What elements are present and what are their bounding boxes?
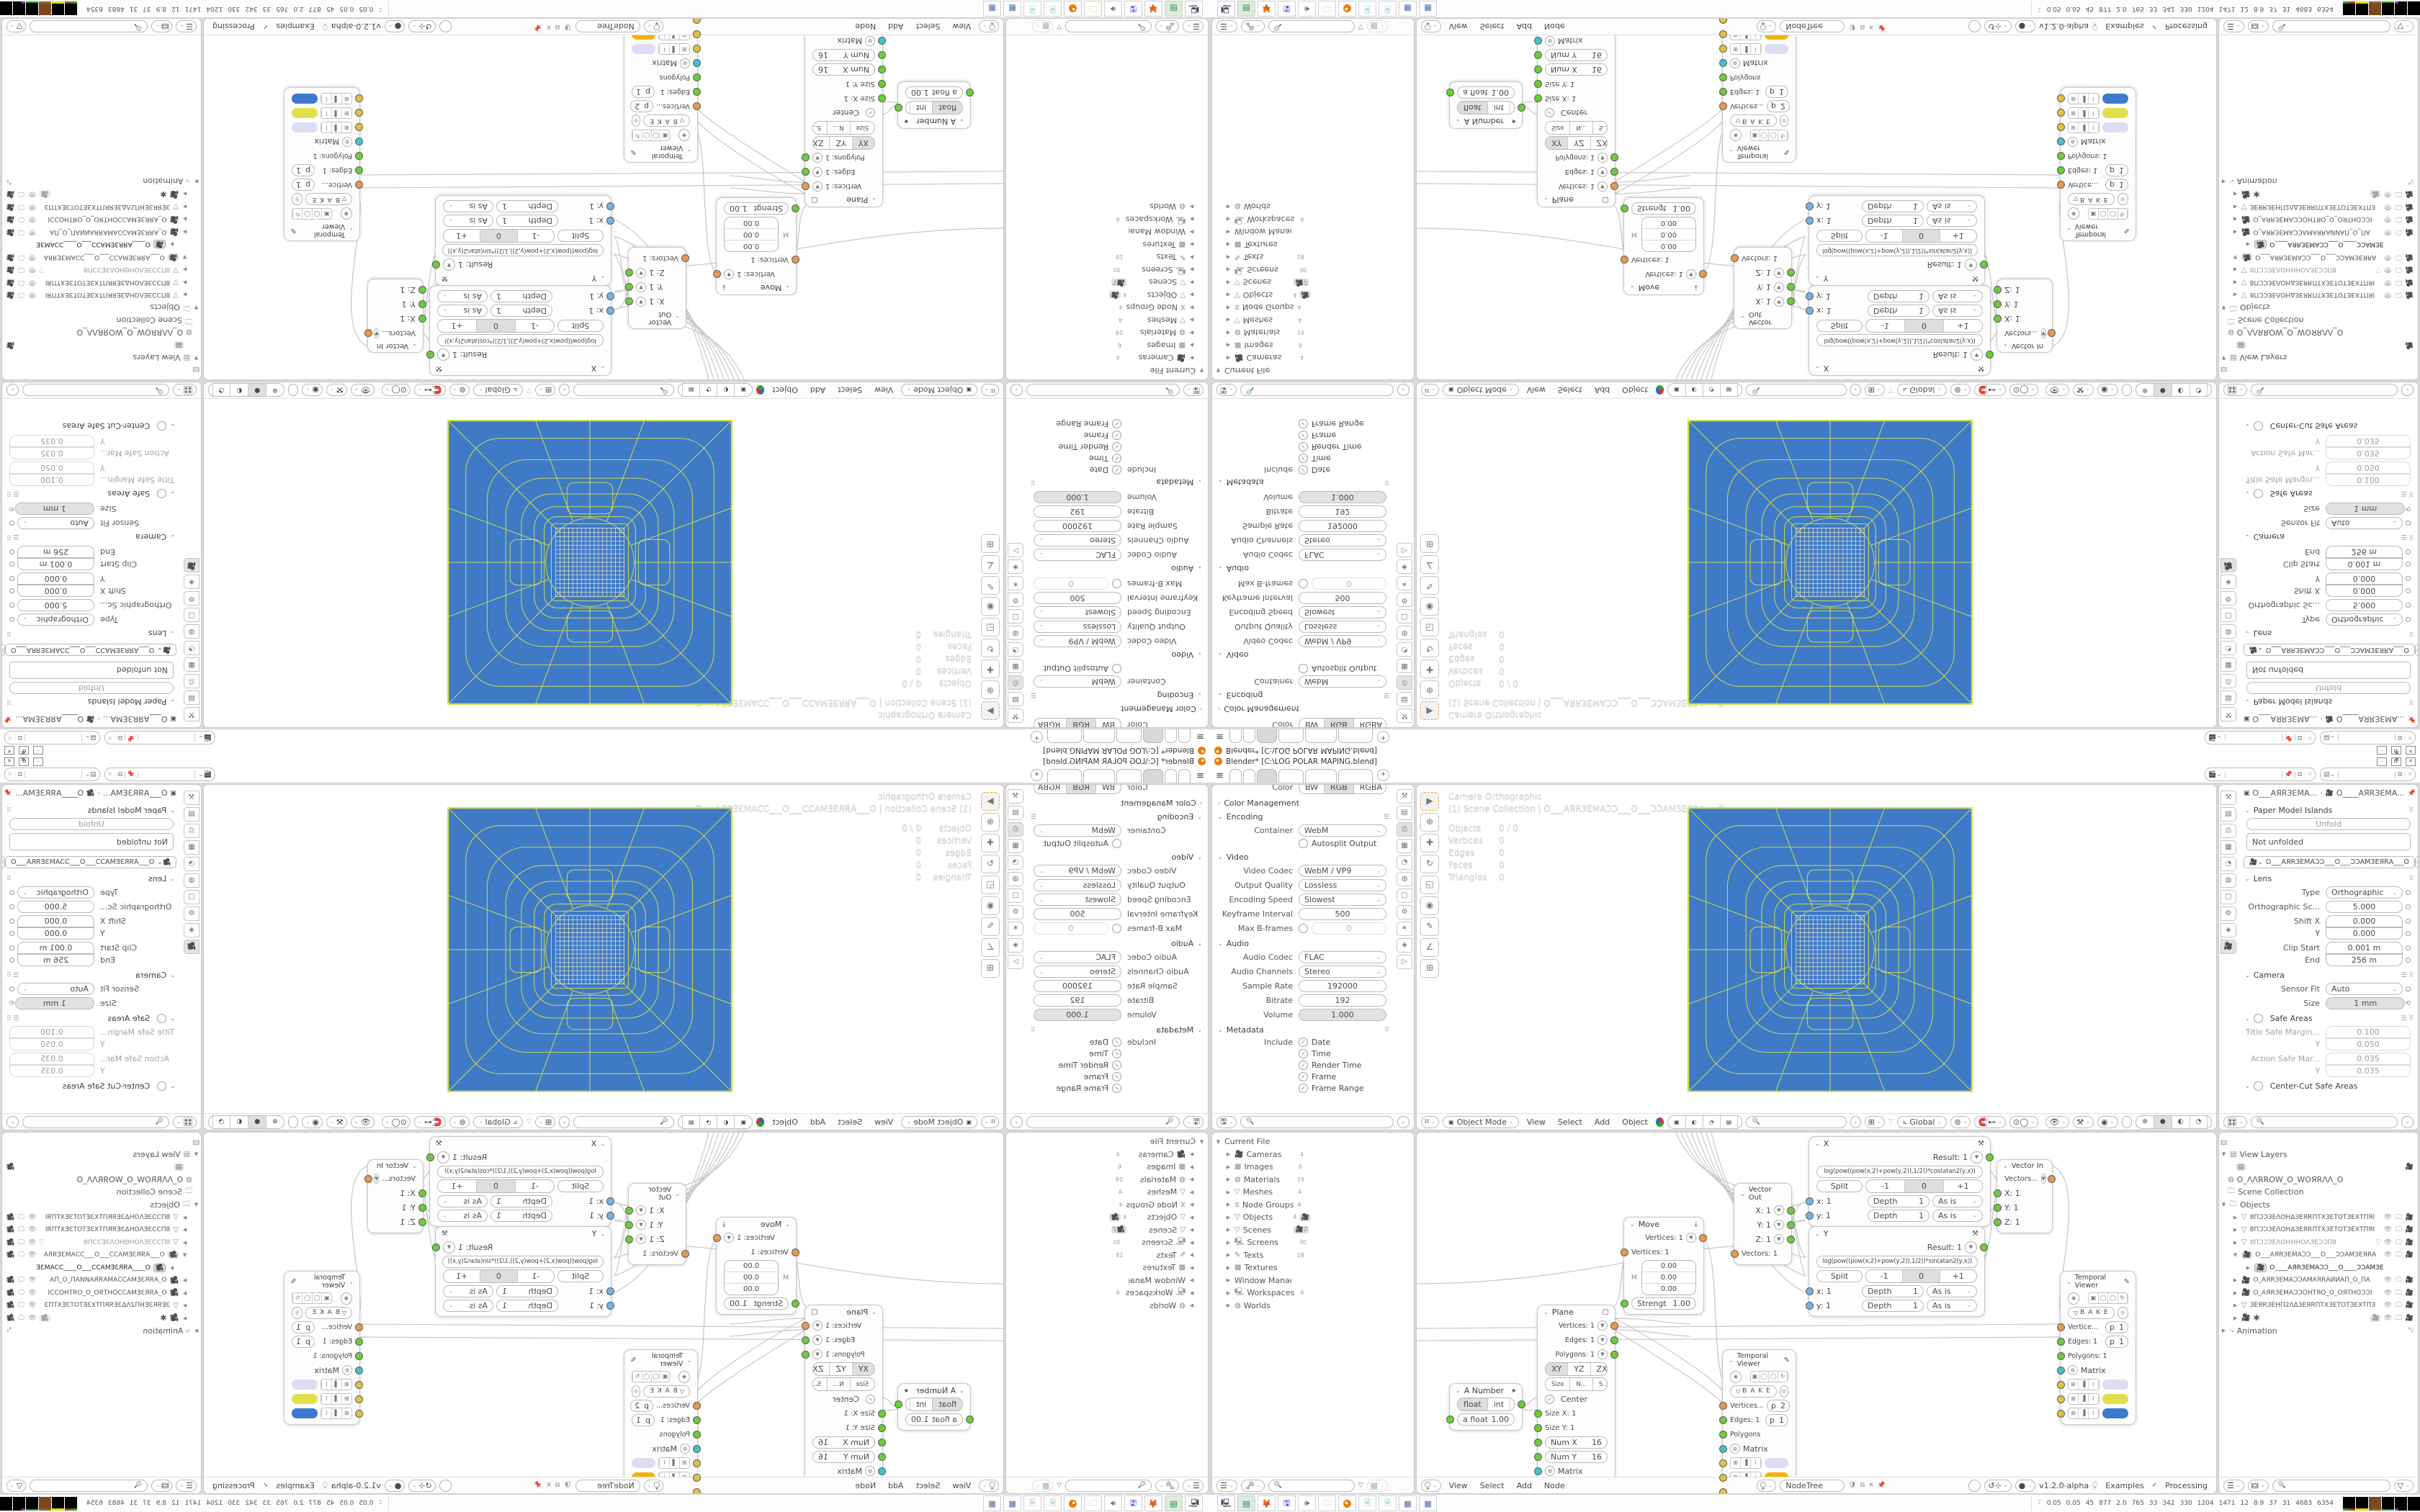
filter-dropdown[interactable]: ▽⌄ — [6, 1480, 26, 1492]
viewport-search-input[interactable]: 🔍 — [573, 384, 673, 397]
container-dropdown[interactable]: WebM⌄ — [1299, 824, 1386, 837]
tree-icon[interactable]: ⧬⌄ — [644, 21, 664, 33]
material-shading-button[interactable]: ◐ — [230, 384, 248, 397]
split-button[interactable]: Split — [1816, 230, 1863, 242]
node-a-number[interactable]: ⌄A Number▸ floatint⚙▼ a float1.00 — [1449, 1383, 1523, 1431]
output-tab-icon[interactable]: ⎙ — [1397, 822, 1412, 837]
formula-field[interactable]: log(pow((pow(x,2)+pow(y,2)),1/2))*cos(at… — [437, 1166, 604, 1178]
editor-type-button[interactable]: ⌗⌄ — [1421, 1116, 1439, 1128]
output-socket[interactable] — [1980, 1243, 1988, 1251]
tree-item[interactable]: Scene Collection — [2238, 315, 2414, 325]
material-shading-button[interactable]: ◐ — [230, 1116, 248, 1128]
measure-tool[interactable]: ∠ — [1420, 938, 1439, 957]
snap-target-button[interactable]: ⊚⌄ — [449, 1116, 470, 1128]
anim-icon[interactable]: ◎ — [2117, 1307, 2128, 1319]
add-menu[interactable]: Add — [1590, 1117, 1614, 1127]
physics-tab-icon[interactable]: ◈ — [1008, 938, 1023, 953]
particles-tab-icon[interactable]: ✶ — [1397, 576, 1412, 590]
tree-item[interactable]: ЗЕЯRЗЕНП2ΛΔЗЕЯRПТХЗЕТОТЗЕХТПЗ — [2250, 203, 2381, 210]
viewport-icon[interactable]: 🖵 — [2396, 228, 2402, 235]
workspace-tab[interactable] — [1083, 729, 1115, 743]
shading-mode-group[interactable]: ⊕ ● ◐ ◔ ⌄ — [208, 1115, 284, 1129]
add-workspace-button[interactable]: + — [1377, 731, 1389, 743]
input-socket[interactable] — [1719, 1431, 1727, 1439]
render-icon[interactable]: 🎥 — [2406, 203, 2414, 210]
tree-item[interactable]: Objects — [2240, 1200, 2414, 1210]
output-socket[interactable] — [625, 298, 633, 306]
shading-dropdown[interactable]: ⌄ — [208, 1116, 212, 1128]
object-tab-icon[interactable]: ▢ — [1397, 609, 1412, 624]
sensor-fit-dropdown[interactable]: Auto⌄ — [17, 517, 94, 529]
viewport-3d[interactable]: ▶ ⊕ ✚ ↻ ◱ ◉ ✎ ∠ ⊞ Camera Orthographic (1… — [203, 382, 1004, 728]
audio-codec-dropdown[interactable]: FLAC⌄ — [1034, 951, 1121, 963]
depth-field[interactable]: Depth1 — [496, 201, 558, 213]
output-socket[interactable] — [1986, 1153, 1994, 1161]
tree-item[interactable]: О_АЯRЗЕМАƆƆАМАЯRАИИАП_О_ПА — [2253, 1277, 2380, 1284]
metadata-panel[interactable]: Metadata — [1227, 1025, 1264, 1035]
taskbar-speaker-icon[interactable]: 🕪 — [1104, 1, 1122, 17]
max-bframes-checkbox[interactable] — [1112, 924, 1121, 933]
max-bframes-field[interactable]: 0 — [1034, 577, 1108, 590]
formula-field[interactable]: log(pow((pow(x,2)+pow(y,2)),1/2))*sin(at… — [1816, 245, 1978, 257]
lens-type-dropdown[interactable]: Orthographic⌄ — [17, 613, 94, 626]
asis-dropdown[interactable]: As is⌄ — [443, 201, 493, 213]
transform-tool[interactable]: ◉ — [1420, 896, 1439, 915]
scene-tab-icon[interactable]: ◔ — [1397, 642, 1412, 657]
color-socket[interactable] — [1719, 1459, 1727, 1467]
tree-item[interactable]: Scenes — [1243, 1225, 1291, 1235]
particles-tab-icon[interactable]: ✶ — [1008, 576, 1023, 590]
unfold-button[interactable]: Unfold — [2246, 818, 2411, 830]
editor-type-button[interactable]: ⧬⌄ — [1421, 21, 1441, 33]
audio-codec-dropdown[interactable]: FLAC⌄ — [1034, 549, 1121, 561]
sample-rate-field[interactable]: 192000 — [1034, 520, 1121, 532]
tree-item[interactable]: О_АЯRЗЕМАƆƆОНТЯО_О_ОЯТНОƆƆI — [2253, 1290, 2380, 1297]
split-button[interactable]: Split — [1816, 320, 1863, 332]
refresh-icon[interactable]: ◉ — [341, 208, 352, 220]
input-socket[interactable] — [1719, 103, 1727, 111]
sensor-size-field[interactable]: 1 mm — [2326, 503, 2405, 515]
tree-item[interactable]: О_ΛΛRROW_О_WОЯRΛΛ_О — [2237, 1175, 2414, 1184]
close-button[interactable]: ✕ — [2406, 757, 2416, 766]
output-socket[interactable] — [802, 1336, 810, 1344]
modifier-tab-icon[interactable]: ⚙ — [1008, 905, 1023, 919]
render-icon[interactable]: 🎥 — [6, 1214, 14, 1221]
safe-areas-checkbox[interactable] — [2254, 489, 2263, 498]
editor-type-button[interactable]: 🖫⌄ — [1183, 384, 1204, 397]
tree-item[interactable]: Worlds — [1244, 202, 1298, 211]
workspace-tab[interactable] — [1116, 769, 1142, 783]
wireframe-shading-button[interactable]: ⊕ — [2136, 1116, 2154, 1128]
gizmos-dropdown[interactable]: ⚒⌄ — [2073, 384, 2094, 397]
render-icon[interactable]: 🎥 — [6, 1277, 14, 1284]
render-icon[interactable]: 🎥 — [2406, 1315, 2414, 1322]
anim-icon[interactable]: ◎ — [632, 115, 640, 127]
asis-dropdown[interactable]: As is⌄ — [1932, 305, 1983, 318]
depth-field[interactable]: Depth1 — [1868, 305, 1930, 318]
workspace-tab-active[interactable] — [1257, 729, 1277, 743]
include-rendertime-checkbox[interactable]: ✓ — [1299, 442, 1308, 451]
tree-item[interactable]: Objects — [1243, 290, 1291, 300]
camera-data-id-selector[interactable]: 🎥⌄О___АЯRЗЕМАƆƆ___О___ƆƆАМЗЕЯRА___О — [2244, 644, 2415, 656]
include-frame-checkbox[interactable]: ✓ — [1299, 431, 1308, 440]
shift-x-field[interactable]: 0.000 — [17, 585, 94, 597]
copy-icon[interactable]: ⧉ — [555, 1482, 560, 1489]
split-button[interactable]: Split — [557, 230, 604, 242]
node-a-number[interactable]: ⌄A Number▸ floatint⚙▼ a float1.00 — [1449, 81, 1523, 129]
close-icon[interactable]: ✕ — [5, 734, 16, 742]
overlay-button[interactable]: ●⌄ — [2015, 1480, 2035, 1492]
viewport-icon[interactable]: 🖵 — [18, 1226, 24, 1233]
asis-dropdown[interactable]: As is⌄ — [437, 1195, 488, 1207]
render-icon[interactable]: 🎥 — [2406, 1277, 2414, 1284]
tool-tab-icon[interactable]: ⚒ — [184, 707, 200, 721]
include-date-checkbox[interactable]: ✓ — [1112, 465, 1121, 474]
tree-item[interactable]: Textures — [1122, 1263, 1176, 1272]
input-socket[interactable] — [878, 1453, 886, 1461]
shield-icon[interactable]: 🛡 — [563, 1482, 571, 1489]
hide-icon[interactable]: 👁 — [2384, 253, 2392, 261]
scene-tab-icon[interactable]: ◔ — [2220, 857, 2236, 871]
encoding-speed-dropdown[interactable]: Slowest⌄ — [1299, 894, 1386, 906]
output-socket[interactable] — [802, 1322, 810, 1330]
dropdown-button[interactable]: ⌄ — [1850, 384, 1861, 397]
plane-size-segment[interactable]: SizeN...S...Si... — [1545, 121, 1608, 135]
vector-value-field[interactable]: 0.000.000.00 — [724, 1260, 779, 1295]
snap-toggle-button[interactable]: 🧲⊷⌄ — [414, 1116, 446, 1128]
sensor-fit-dropdown[interactable]: Auto⌄ — [17, 983, 94, 995]
color-socket[interactable] — [693, 1488, 701, 1495]
output-socket[interactable] — [1787, 1207, 1795, 1215]
input-socket[interactable] — [693, 1431, 701, 1439]
select-box-tool[interactable]: ▶ — [1420, 701, 1439, 720]
filter-person-icon[interactable]: 🜲 — [193, 364, 200, 377]
taskbar-calculator-icon[interactable]: ▦ — [1419, 1495, 1437, 1511]
color-swatch-lavender[interactable] — [292, 1380, 318, 1390]
encoding-panel[interactable]: Encoding — [1227, 690, 1263, 700]
anim-icon[interactable]: ⟲ — [2405, 1000, 2411, 1007]
tree-item[interactable]: 8ПƆƆЗЕΛОНΔЗЕЯRПТХЗЕТОТЗЕХТПЯI — [2250, 1214, 2381, 1221]
matrix-socket[interactable] — [693, 1445, 701, 1453]
output-socket[interactable] — [426, 1153, 434, 1161]
safe-areas-panel[interactable]: Safe Areas — [107, 489, 150, 498]
scene-name-field[interactable] — [2226, 732, 2282, 744]
render-icon[interactable]: 🎥 — [6, 1239, 14, 1246]
hide-icon[interactable]: 👁 — [28, 1315, 36, 1322]
add-primitive-tool[interactable]: ⊞ — [1420, 959, 1439, 978]
input-socket-y[interactable] — [1806, 1212, 1814, 1220]
formula-field[interactable]: log(pow((pow(x,2)+pow(y,2)),1/2))*sin(at… — [442, 245, 604, 257]
render-tab-icon[interactable]: ▤ — [1397, 806, 1412, 820]
float-value-field[interactable]: a float1.00 — [1457, 1413, 1515, 1426]
viewport-search-input[interactable]: 🔍 — [1746, 1116, 1846, 1128]
offset-segment[interactable]: -10+1 — [437, 319, 555, 333]
list-toggle-button[interactable]: ⊞⌄ — [1865, 384, 1885, 397]
editor-type-button[interactable]: 🖫⌄ — [1216, 1116, 1237, 1128]
tree-item[interactable]: View Layers — [6, 1150, 181, 1159]
shield-icon[interactable]: 🛡 — [1848, 1482, 1856, 1489]
dropdown-button[interactable]: ⌄ — [1850, 1116, 1861, 1128]
input-socket-x[interactable] — [1806, 1287, 1814, 1295]
pin-icon[interactable]: 📌 — [125, 771, 138, 778]
keyframe-interval-field[interactable]: 500 — [1034, 592, 1121, 604]
node-vector-out[interactable]: ⌄Vector Out X: 1▼ Y: 1▼ Z: 1▼ Vectors: 1 — [628, 247, 686, 329]
taskbar-blender-icon[interactable] — [1064, 1, 1082, 17]
editor-type-button[interactable]: ⧬⌄ — [979, 1480, 999, 1492]
keyframe-interval-field[interactable]: 500 — [1299, 908, 1386, 920]
tray-graph-widgets[interactable] — [2343, 1497, 2420, 1511]
shading-mode-group[interactable]: ⊕ ● ◐ ◔ ⌄ — [208, 384, 284, 397]
examples-menu[interactable]: Examples — [2101, 22, 2148, 32]
hide-icon[interactable]: 👁 — [2384, 266, 2392, 273]
tree-item[interactable]: Texts — [1126, 1251, 1176, 1260]
hide-icon[interactable]: 👁 — [28, 279, 36, 286]
split-button[interactable]: Split — [557, 1180, 604, 1192]
taskbar-system-monitor-icon[interactable]: 🖳 — [1217, 1495, 1235, 1511]
depth-field[interactable]: Depth1 — [496, 1300, 558, 1312]
snap-toggle-button[interactable]: 🧲⊷⌄ — [1974, 1116, 2006, 1128]
hide-icon[interactable]: 👁 — [2384, 1315, 2392, 1322]
overlays-dropdown[interactable]: ◉⌄ — [2097, 1116, 2117, 1128]
metadata-panel[interactable]: Metadata — [1156, 477, 1193, 487]
gizmo-toggle[interactable]: ▣ — [734, 1116, 752, 1128]
hide-icon[interactable]: 👁 — [2384, 203, 2392, 210]
camera-data-id-selector[interactable]: 🎥⌄О___АЯRЗЕМАƆƆ___О___ƆƆАМЗЕЯRА___О — [2244, 856, 2415, 868]
view-menu[interactable]: View — [1445, 22, 1472, 32]
output-socket[interactable] — [625, 284, 633, 292]
gizmo-toggle[interactable]: ▣ — [1668, 1116, 1686, 1128]
viewport-icon[interactable]: 🖵 — [18, 190, 24, 197]
gizmo-toggle[interactable]: ▣ — [1668, 384, 1686, 397]
rgba-button[interactable]: RGBA — [1354, 719, 1386, 727]
color-socket[interactable] — [2057, 95, 2065, 103]
keyframe-dot[interactable] — [2406, 904, 2411, 909]
viewport-toggle-group[interactable]: ▣ ◐ ◔ ▤ ⎙ — [1667, 1115, 1742, 1129]
clip-end-field[interactable]: 256 m — [17, 546, 94, 558]
include-time-checkbox[interactable]: ✓ — [1299, 454, 1308, 463]
copy-icon[interactable]: ⧉ — [1860, 23, 1865, 30]
viewlayer-selector[interactable]: ▤⌄ ⧉ ✕ — [4, 731, 100, 744]
include-rendertime-checkbox[interactable]: ✓ — [1112, 1061, 1121, 1070]
particles-tab-icon[interactable]: ✶ — [1008, 922, 1023, 936]
pin-icon[interactable]: 📌 — [534, 1482, 542, 1489]
node-math-y[interactable]: ⌄Y⚒ Result: 1▼ log(pow((pow(x,2)+pow(y,2… — [1809, 195, 1985, 286]
shading-dropdown[interactable]: ⌄ — [2208, 1116, 2212, 1128]
tree-item-selected[interactable]: О____АЯRЗЕМАƆƆ___О____ƆƆАМЗЕ — [2269, 240, 2414, 248]
max-bframes-checkbox[interactable] — [1299, 579, 1308, 588]
anim-icon[interactable]: ⟲ — [9, 505, 15, 513]
restore-button[interactable]: 🗗 — [19, 747, 29, 755]
viewport-icon[interactable]: 🖵 — [2396, 253, 2402, 261]
color-swatch-lavender[interactable] — [2102, 122, 2128, 132]
anim-icon[interactable]: ⟲ — [9, 1000, 15, 1007]
tree-item[interactable]: Images — [1124, 341, 1175, 350]
node-plane[interactable]: ⌄Plane▢ Vertices: 1▼ Edges: 1▼ Polygons:… — [805, 1305, 883, 1482]
tree-item[interactable]: Meshes — [1243, 315, 1295, 325]
input-socket[interactable] — [1719, 74, 1727, 82]
bake-button[interactable]: ▽B A K E — [2068, 1307, 2115, 1319]
color-swatch-lime[interactable] — [2102, 108, 2128, 118]
render-tab-icon[interactable]: ▤ — [1397, 692, 1412, 706]
minimize-button[interactable]: – — [2377, 747, 2387, 755]
node-editor[interactable]: ⌄X⚒ Result: 1▼ log(pow((pow(x,2)+pow(y,2… — [1416, 1132, 2217, 1494]
output-tab-icon[interactable]: ⎙ — [1008, 675, 1023, 690]
tree-item[interactable]: Screens — [1124, 265, 1173, 274]
node-math-y[interactable]: ⌄Y⚒ Result: 1▼ log(pow((pow(x,2)+pow(y,2… — [435, 1226, 611, 1317]
matrix-socket[interactable] — [355, 1367, 363, 1374]
keyframe-dot[interactable] — [9, 986, 14, 991]
offset-segment[interactable]: -10+1 — [437, 1179, 555, 1193]
p-field[interactable]: p1 — [2105, 179, 2128, 192]
constraints-tab-icon[interactable]: ⚙ — [184, 591, 200, 606]
autosplit-checkbox[interactable] — [1299, 664, 1308, 673]
input-socket[interactable] — [1534, 52, 1542, 60]
input-socket[interactable] — [2057, 1338, 2065, 1346]
workspace-tab[interactable] — [1178, 729, 1191, 743]
copy-icon[interactable]: ⧉ — [2395, 734, 2404, 742]
float-value-field[interactable]: a float1.00 — [1457, 87, 1515, 99]
depth-field[interactable]: Depth1 — [490, 291, 552, 303]
viewlayer-selector[interactable]: ▤⌄ ⧉ ✕ — [2320, 731, 2416, 744]
workspace-tab[interactable] — [1243, 729, 1255, 743]
tree-item[interactable]: Worlds — [1244, 1301, 1298, 1310]
include-framerange-checkbox[interactable]: ✓ — [1299, 1084, 1308, 1093]
viewlayer-tab-icon[interactable]: ▦ — [1397, 839, 1412, 853]
p-field[interactable]: p1 — [2105, 1336, 2128, 1348]
scene-selector[interactable]: 🎬⌄ 📌 ⧉ ✕ — [104, 731, 215, 744]
viewport-3d[interactable]: ▶ ⊕ ✚ ↻ ◱ ◉ ✎ ∠ ⊞ Camera Orthographic (1… — [203, 784, 1004, 1130]
title-safe-field[interactable]: 0.100 — [2326, 1026, 2411, 1038]
container-dropdown[interactable]: WebM⌄ — [1034, 675, 1121, 688]
ortho-scale-field[interactable]: 5.000 — [2326, 901, 2403, 913]
hide-icon[interactable]: 👁 — [28, 1290, 36, 1297]
taskbar-speaker-icon[interactable]: 🕪 — [1298, 1495, 1316, 1511]
depth-field[interactable]: Depth1 — [1868, 291, 1930, 303]
transform-tool[interactable]: ◉ — [1420, 597, 1439, 616]
shift-x-field[interactable]: 0.000 — [2326, 915, 2403, 927]
include-framerange-checkbox[interactable]: ✓ — [1299, 419, 1308, 428]
asis-dropdown[interactable]: As is⌄ — [1932, 1195, 1983, 1207]
render-tab-icon[interactable]: ▤ — [184, 690, 200, 705]
anim-icon[interactable]: ◎ — [292, 1307, 302, 1319]
camera-toggle-icon[interactable]: 🎥 — [6, 1164, 14, 1171]
input-socket[interactable] — [355, 1323, 363, 1331]
hide-icon[interactable]: 👁 — [28, 1239, 36, 1246]
display-mode-dropdown[interactable]: ☰⌄ — [2223, 21, 2244, 33]
viewport-icon[interactable]: 🖵 — [2396, 1290, 2402, 1297]
center-cut-panel[interactable]: Center-Cut Safe Areas — [2270, 421, 2358, 431]
search-input[interactable]: 🔍 — [2251, 1116, 2398, 1128]
refresh-icon[interactable]: ◉ — [341, 1292, 352, 1305]
output-socket[interactable] — [1787, 1221, 1795, 1229]
view-menu[interactable]: View — [870, 386, 897, 395]
breadcrumb-data[interactable]: О____АЯRЗЕМА... — [15, 788, 84, 798]
tree-item[interactable]: Materials — [1126, 328, 1176, 337]
object-menu[interactable]: Object — [768, 1117, 802, 1127]
tree-item[interactable]: Window Managers — [1234, 1276, 1291, 1285]
formula-field[interactable]: log(pow((pow(x,2)+pow(y,2)),1/2))*cos(at… — [437, 335, 604, 347]
search-input[interactable]: 🔍 — [30, 1480, 148, 1492]
close-icon[interactable]: ✕ — [546, 1482, 552, 1489]
tree-item[interactable]: Objects — [1130, 1212, 1178, 1222]
editor-type-button[interactable]: ⧬⌄ — [1421, 1480, 1441, 1492]
action-safe-field[interactable]: 0.035 — [2326, 447, 2411, 459]
taskbar-system-monitor-icon[interactable]: 🖳 — [1217, 1, 1235, 17]
overlay-button[interactable]: ●⌄ — [385, 1480, 405, 1492]
select-menu[interactable]: Select — [1554, 386, 1587, 395]
search-input[interactable]: 🔍 — [1065, 21, 1152, 33]
audio-codec-dropdown[interactable]: FLAC⌄ — [1299, 951, 1386, 963]
object-tab-icon[interactable]: ▢ — [1008, 888, 1023, 903]
viewport-search-input[interactable]: 🔍 — [1746, 384, 1846, 397]
color-swatch-lavender[interactable] — [632, 44, 655, 54]
render-icon[interactable]: 🎥 — [6, 1315, 14, 1322]
shading-toggle[interactable]: ◐ — [1686, 384, 1703, 397]
taskbar-media-player-icon[interactable]: ▤ — [1165, 1, 1183, 17]
pin-icon[interactable]: 📌 — [2408, 716, 2416, 723]
proportional-edit-button[interactable]: ⊙◯⌄ — [382, 384, 411, 397]
id-type-dropdown[interactable]: 🗝⌄ — [1155, 21, 1179, 33]
tree-item[interactable]: Scene Collection — [6, 315, 182, 325]
shading-mode-group[interactable]: ⊕ ● ◐ ◔ ⌄ — [2136, 1115, 2212, 1129]
id-type-dropdown[interactable]: 🗝⌄ — [1241, 21, 1265, 33]
search-input[interactable]: 🔍 — [1268, 21, 1355, 33]
matrix-socket[interactable] — [1719, 1445, 1727, 1453]
taskbar-calculator-icon[interactable]: ▦ — [1399, 1495, 1417, 1511]
keyframe-interval-field[interactable]: 500 — [1299, 592, 1386, 604]
material-shading-button[interactable]: ◐ — [2172, 1116, 2190, 1128]
render-icon[interactable]: 🎥 — [6, 1251, 14, 1259]
input-socket-y[interactable] — [1806, 293, 1814, 301]
metadata-panel[interactable]: Metadata — [1156, 1025, 1193, 1035]
annotate-tool[interactable]: ✎ — [1420, 917, 1439, 936]
p-field[interactable]: p1 — [292, 1321, 315, 1333]
vector-value-field[interactable]: 0.000.000.00 — [724, 217, 779, 252]
pin-icon[interactable]: 📌 — [2282, 734, 2295, 742]
proportional-edit-button[interactable]: ⊙◯⌄ — [382, 1116, 411, 1128]
input-socket[interactable] — [2057, 167, 2065, 175]
render-tab-icon[interactable]: ▤ — [2220, 690, 2236, 705]
rgba-button[interactable]: RGBA — [1034, 719, 1066, 727]
node-temporal-viewer[interactable]: ⌄Temporal Viewer✎ ◉▣◯◯↻ ▽B A K E◎ Vertic… — [284, 87, 360, 241]
node-vector-in[interactable]: ⌄Vector In Vectors...▼ X: 1 Y: 1 Z: 1 — [1996, 1159, 2053, 1233]
physics-tab-icon[interactable]: ◈ — [1397, 559, 1412, 574]
center-checkbox[interactable]: ✓ — [866, 109, 875, 118]
tree-item[interactable]: View Layers — [6, 353, 181, 362]
color-management-panel[interactable]: Color Management — [1224, 798, 1299, 808]
color-socket[interactable] — [2057, 124, 2065, 132]
tree-item[interactable]: Animation — [2237, 1326, 2406, 1336]
lens-type-dropdown[interactable]: Orthographic⌄ — [2326, 886, 2403, 899]
asis-dropdown[interactable]: As is⌄ — [1932, 291, 1983, 303]
viewport-icon[interactable]: 🖵 — [18, 228, 24, 235]
tool-tab-icon[interactable]: ⚒ — [1008, 708, 1023, 723]
depth-field[interactable]: Depth1 — [490, 1210, 552, 1222]
output-socket[interactable] — [1699, 1234, 1707, 1242]
tree-item[interactable]: 8ПƆƆЗЕΛОНΔЗЕЯRПТХЗЕТОТЗЕХТПЯI — [39, 291, 170, 298]
tool-tab-icon[interactable]: ⚒ — [2220, 791, 2236, 805]
display-toggle-group[interactable]: ▣◯◯↻ — [1750, 130, 1788, 141]
snap-group-button[interactable]: ↺⊹⌄ — [1984, 21, 2011, 33]
constraints-tab-icon[interactable]: ⚙ — [2220, 591, 2236, 606]
menu-hamburger-icon[interactable]: ≡ — [1196, 731, 1204, 742]
orientation-dropdown[interactable]: ⊾Global⌄ — [473, 384, 524, 397]
breadcrumb-object[interactable]: О___АЯRЗЕМА... — [103, 714, 167, 724]
input-socket-y[interactable] — [606, 1212, 614, 1220]
color-swatch-lime[interactable] — [292, 1394, 318, 1404]
constraints-tab-icon[interactable]: ⚙ — [2220, 906, 2236, 921]
keyframe-dot[interactable] — [2406, 919, 2411, 924]
